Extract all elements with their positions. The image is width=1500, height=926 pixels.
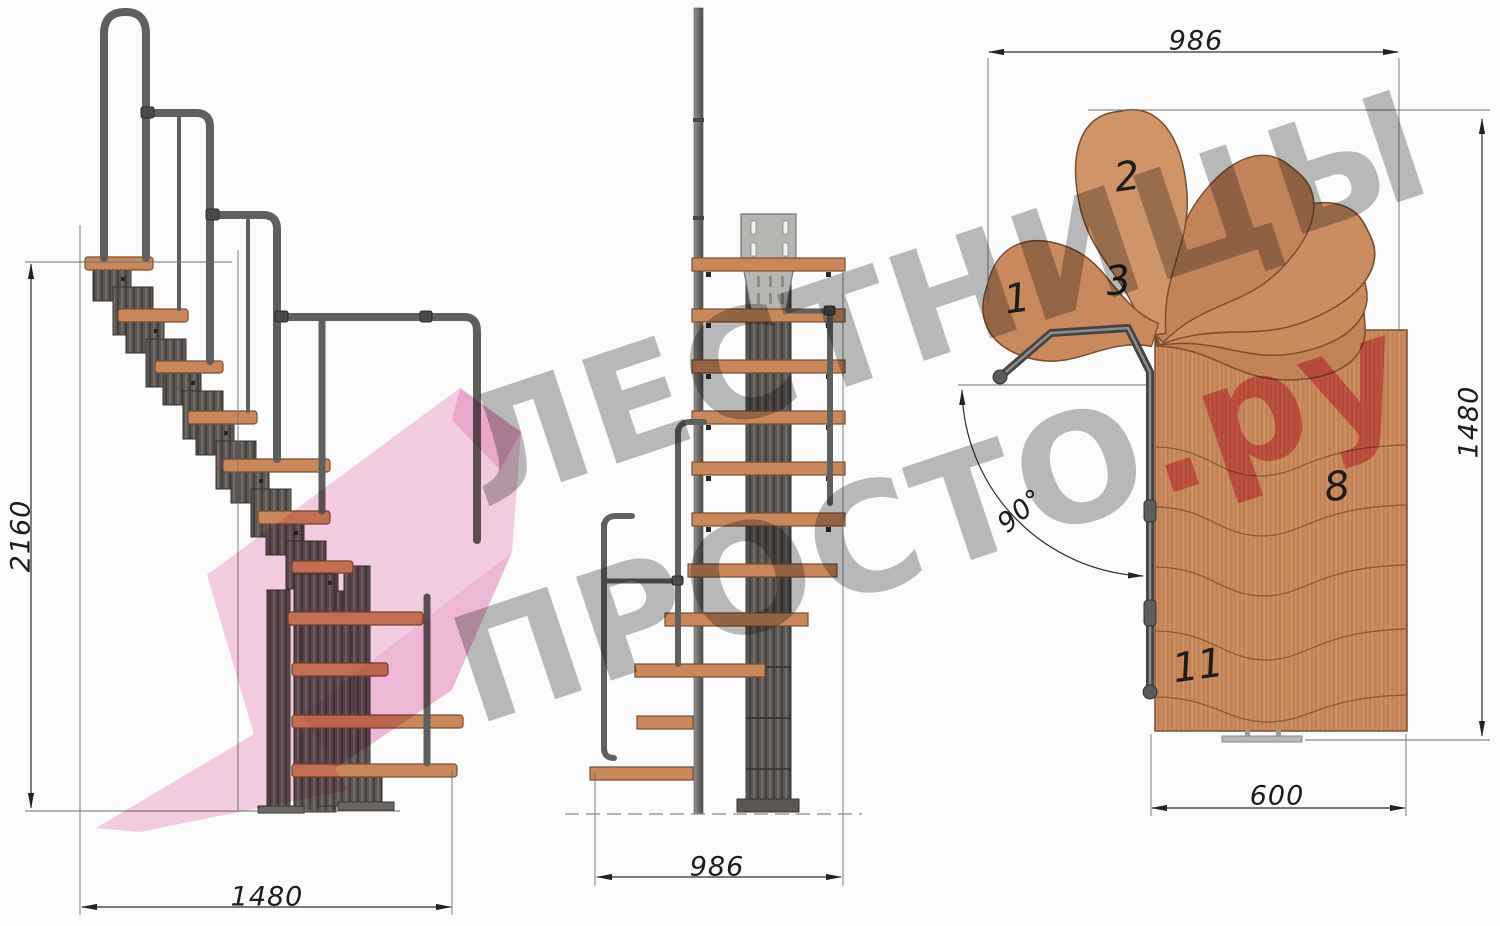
dim-plan-depth: 1480 <box>1454 386 1485 459</box>
dim-front-width: 986 <box>690 852 745 883</box>
front-elevation-view <box>590 8 845 814</box>
angle-arc <box>962 390 1143 576</box>
dim-plan-flight-width: 600 <box>1250 781 1305 812</box>
dim-plan-width: 986 <box>1169 26 1224 57</box>
central-column <box>746 271 791 812</box>
step-number-11: 11 <box>1170 640 1227 693</box>
dim-side-height: 2160 <box>6 500 37 573</box>
staircase-technical-drawing: 2160 1480 986 986 1480 600 90° 1 2 3 8 1… <box>0 0 1500 926</box>
dim-side-length: 1480 <box>231 882 304 913</box>
